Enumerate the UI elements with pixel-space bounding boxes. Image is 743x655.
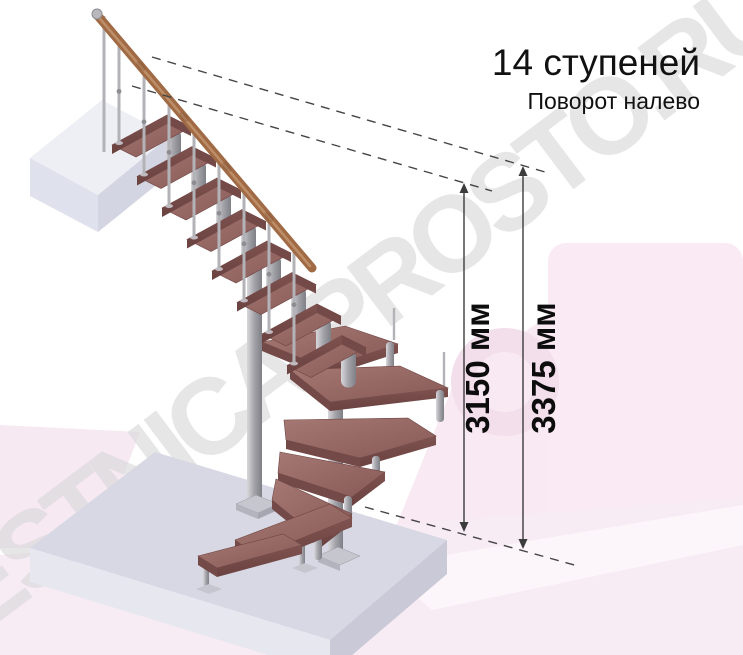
staircase-diagram: LESTNICA-PROSTO.RU: [0, 0, 743, 655]
baluster-joint: [242, 241, 247, 246]
handrail-end-cap: [92, 9, 102, 19]
baluster-joint: [217, 211, 222, 216]
baluster-joint: [142, 119, 147, 124]
support-column: [247, 250, 262, 508]
turn-direction-subtitle: Поворот налево: [527, 88, 700, 114]
winder-post: [436, 390, 444, 422]
dimension-label-3150: 3150 мм: [459, 302, 496, 433]
baluster-joint: [292, 302, 297, 307]
staircase-diagram-canvas: LESTNICA-PROSTO.RU: [0, 0, 743, 655]
baluster-joint: [117, 89, 122, 94]
baluster-joint: [267, 272, 272, 277]
steps-count-title: 14 ступеней: [492, 42, 700, 83]
baluster-joint: [192, 180, 197, 185]
dimension-label-3375: 3375 мм: [525, 302, 562, 433]
baluster-joint: [167, 150, 172, 155]
